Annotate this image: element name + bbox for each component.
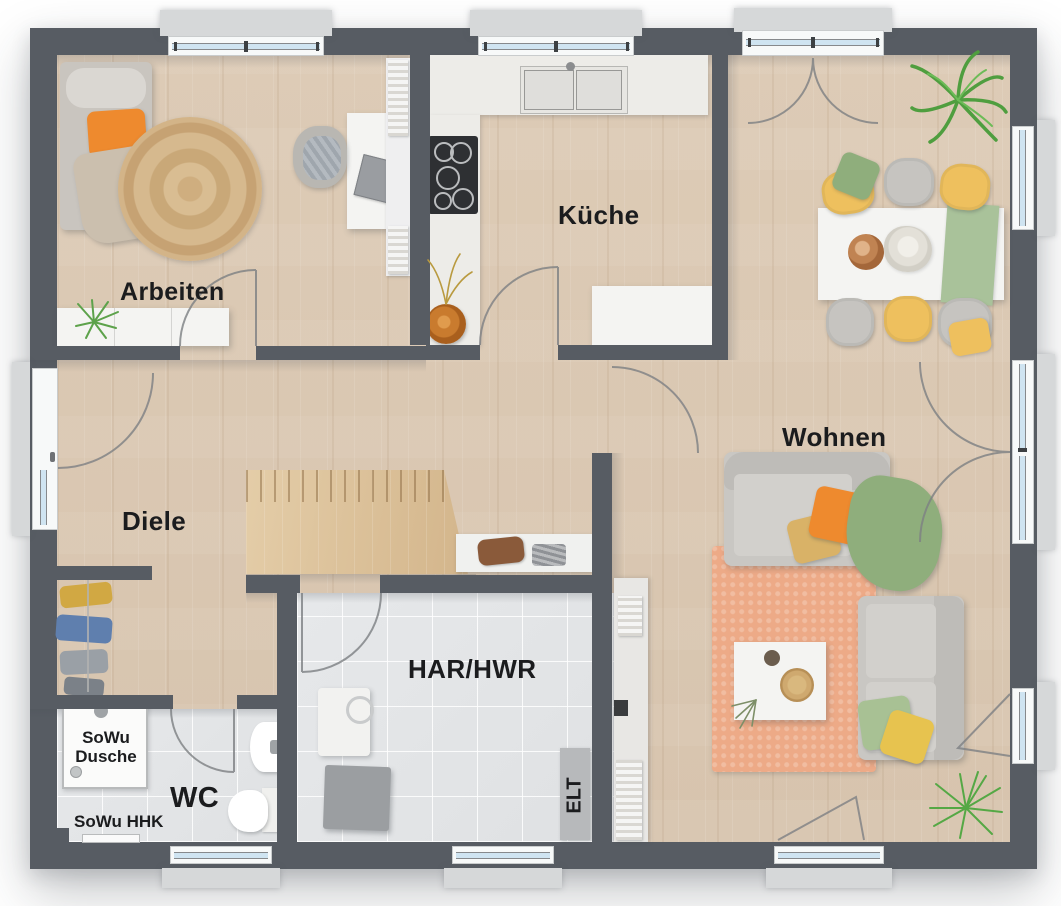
room-label-har: HAR/HWR — [408, 654, 536, 685]
sofa-right-cushion — [866, 604, 936, 678]
vase — [764, 650, 780, 666]
sink-basin-right — [576, 70, 622, 110]
copper-bowl — [848, 234, 884, 270]
tv-mount — [614, 700, 628, 716]
shadow — [246, 593, 612, 603]
wall-har-north — [380, 575, 612, 593]
tray — [780, 668, 814, 702]
dining-chair-gray — [884, 158, 934, 206]
books — [616, 760, 642, 840]
wall-niche — [30, 566, 152, 580]
window-tick — [748, 38, 751, 47]
shower-drain — [70, 766, 82, 778]
wall-arbeiten-south — [256, 346, 430, 360]
window-sill — [444, 868, 562, 888]
door-glass — [1019, 456, 1026, 540]
sideboard-divider — [171, 308, 172, 346]
window-sill — [162, 868, 280, 888]
fruit-bowl — [426, 304, 466, 344]
sink-faucet — [566, 62, 575, 71]
window-glass — [1019, 130, 1026, 226]
burner — [436, 166, 460, 190]
books — [388, 60, 408, 136]
elt-label-wrap: ELT — [560, 772, 590, 818]
wall-diele-wohnen — [592, 453, 612, 842]
room-label-wohnen: Wohnen — [782, 422, 886, 453]
dining-chair-yellow — [884, 296, 932, 342]
window-sill — [766, 868, 892, 888]
wall-kueche-south — [426, 345, 480, 360]
wall-arbeiten-kueche — [410, 55, 430, 345]
door-handle — [50, 452, 55, 462]
wall-kueche-south — [558, 345, 585, 360]
window-glass — [778, 852, 880, 859]
room-label-diele: Diele — [122, 506, 186, 537]
door-sill — [1037, 354, 1055, 550]
burner — [452, 188, 474, 210]
radiator — [82, 834, 140, 843]
floor-plan-outline: Arbeiten Küche Wohnen Diele WC HAR/HWR E… — [30, 28, 1037, 869]
books — [388, 226, 408, 274]
window-tick — [554, 41, 558, 52]
window-tick — [174, 42, 177, 51]
window-tick — [876, 38, 879, 47]
chair-cushion — [303, 136, 341, 180]
shower-label: SoWu Dusche — [70, 728, 142, 766]
toilet-bowl — [228, 790, 268, 832]
window-tick — [811, 37, 815, 48]
radiator-label: SoWu HHK — [74, 812, 184, 831]
shower-label-line1: SoWu — [70, 728, 142, 747]
wall-har-north — [246, 575, 300, 593]
window-sill — [1037, 120, 1055, 236]
dining-chair-gray — [826, 298, 874, 346]
shadow — [728, 55, 740, 360]
window-tick — [244, 41, 248, 52]
appliance-door — [346, 696, 374, 724]
wall-arbeiten-south — [30, 346, 180, 360]
wall-wc-north — [237, 695, 277, 709]
door-glass — [40, 470, 47, 525]
wall-wc-north — [30, 695, 173, 709]
shadow — [30, 360, 426, 372]
room-label-kueche: Küche — [558, 200, 639, 231]
wall-kueche-wohnen — [712, 55, 728, 360]
door-sill — [12, 362, 30, 536]
coat-blue — [55, 614, 113, 644]
door-sill — [734, 8, 892, 32]
window-glass — [174, 852, 268, 859]
decor-items — [532, 544, 566, 566]
bag — [477, 536, 525, 567]
wall-kueche-south — [585, 345, 728, 360]
yellow-ottoman — [947, 317, 992, 357]
room-label-wc: WC — [170, 782, 219, 815]
sideboard-divider — [114, 308, 115, 346]
coat-gray — [59, 649, 108, 675]
window-tick — [626, 42, 629, 51]
floor-plan-image: Arbeiten Küche Wohnen Diele WC HAR/HWR E… — [0, 0, 1061, 906]
bed-pillow — [66, 68, 146, 108]
wall-wc-east — [277, 593, 297, 842]
sofa-right-back — [934, 596, 964, 760]
window-tick — [1018, 448, 1027, 452]
burner — [450, 142, 472, 164]
stair-treads — [246, 470, 452, 502]
window-sill — [160, 10, 332, 36]
gray-box — [323, 765, 391, 831]
door-glass — [1019, 364, 1026, 450]
sink-basin-left — [524, 70, 574, 110]
window-glass — [1019, 692, 1026, 760]
panel-label-elt: ELT — [564, 777, 587, 813]
wall-stub — [55, 828, 69, 842]
window-tick — [484, 42, 487, 51]
window-glass — [456, 852, 550, 859]
flower-bouquet — [884, 226, 932, 272]
window-sill — [1037, 682, 1055, 770]
window-tick — [316, 42, 319, 51]
sideboard — [57, 308, 229, 346]
shower-label-line2: Dusche — [70, 747, 142, 766]
table-runner — [941, 202, 1000, 305]
round-jute-rug — [118, 117, 262, 261]
window-sill — [470, 10, 642, 36]
burner — [434, 192, 452, 210]
room-label-arbeiten: Arbeiten — [120, 278, 225, 307]
kitchen-peninsula — [592, 286, 712, 346]
books — [618, 596, 642, 636]
